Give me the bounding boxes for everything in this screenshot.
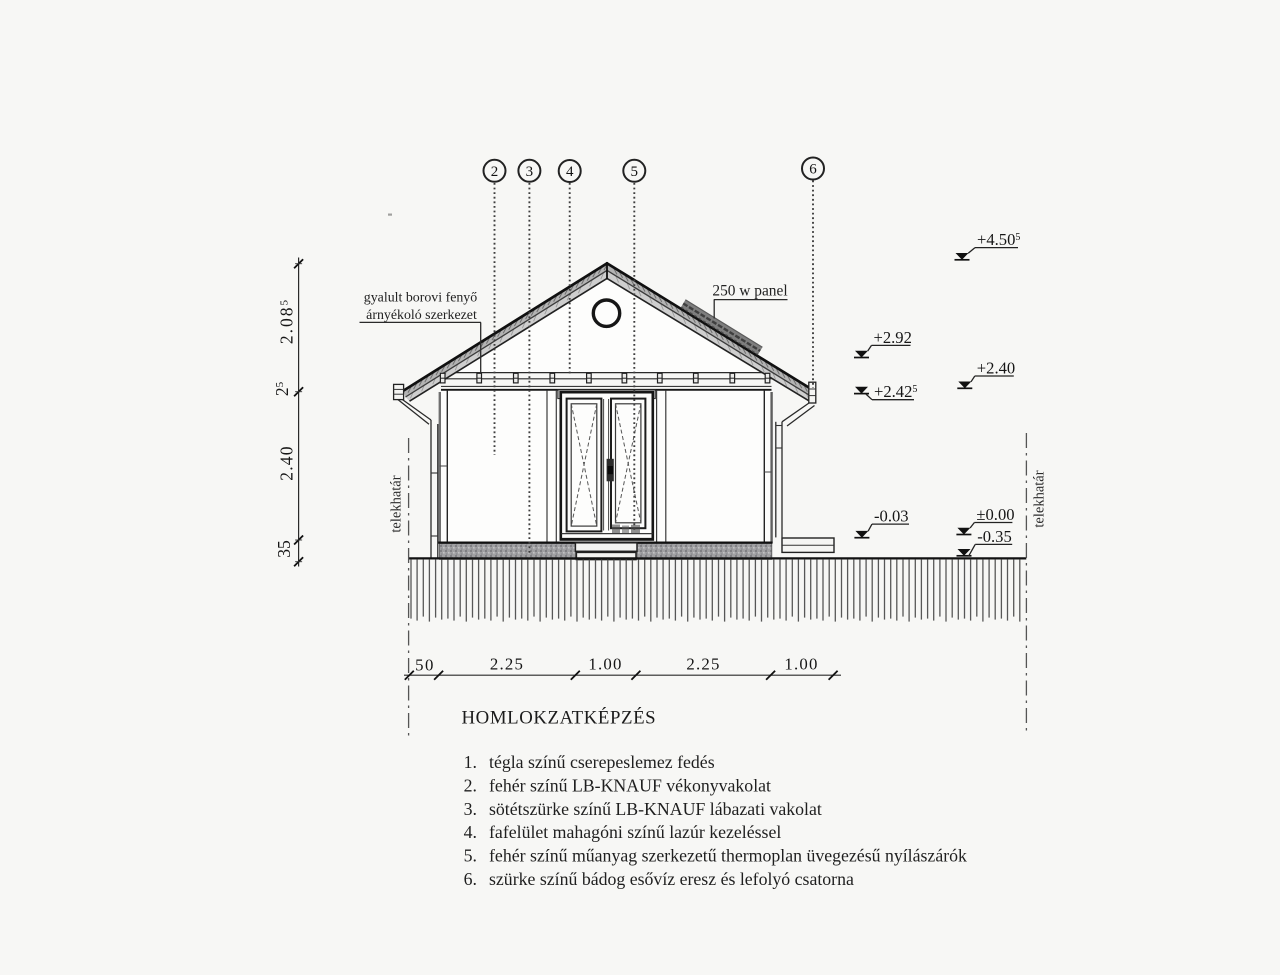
svg-text:1.: 1.	[464, 752, 477, 772]
svg-text:2.: 2.	[464, 775, 477, 795]
svg-text:2.25: 2.25	[490, 655, 524, 674]
svg-text:+4.505: +4.505	[977, 230, 1020, 249]
svg-text:gyalult borovi fenyő: gyalult borovi fenyő	[364, 291, 477, 306]
svg-text:telekhatár: telekhatár	[389, 475, 405, 532]
svg-text:2.25: 2.25	[686, 655, 720, 674]
svg-text:sötétszürke színű LB-KNAUF láb: sötétszürke színű LB-KNAUF lábazati vako…	[489, 799, 822, 819]
svg-text:250 w panel: 250 w panel	[712, 283, 787, 300]
svg-text:4: 4	[566, 164, 574, 180]
svg-text:5.: 5.	[464, 846, 477, 866]
svg-text:fehér színű műanyag szerkezetű: fehér színű műanyag szerkezetű thermopla…	[489, 846, 967, 866]
svg-text:telekhatár: telekhatár	[1032, 470, 1048, 527]
svg-text:2.40: 2.40	[277, 445, 297, 480]
svg-text:szürke színű bádog esővíz eres: szürke színű bádog esővíz eresz és lefol…	[489, 869, 854, 889]
svg-text:2: 2	[491, 164, 499, 180]
svg-text:6.: 6.	[464, 869, 477, 889]
svg-text:HOMLOKZATKÉPZÉS: HOMLOKZATKÉPZÉS	[462, 707, 657, 729]
svg-text:35: 35	[274, 540, 294, 558]
svg-text:-0.35: -0.35	[977, 527, 1012, 546]
svg-text:+2.425: +2.425	[874, 382, 917, 401]
svg-text:-0.03: -0.03	[874, 507, 909, 526]
svg-text:tégla színű cserepeslemez fedé: tégla színű cserepeslemez fedés	[489, 752, 715, 772]
svg-text:±0.00: ±0.00	[976, 505, 1014, 524]
svg-text:4.: 4.	[464, 822, 477, 842]
svg-text:fafelület mahagóni színű lazúr: fafelület mahagóni színű lazúr kezelésse…	[489, 822, 781, 842]
svg-text:6: 6	[809, 162, 817, 178]
svg-text:1.00: 1.00	[784, 655, 818, 674]
svg-text:3.: 3.	[464, 799, 477, 819]
svg-text:1.00: 1.00	[588, 655, 622, 674]
svg-text:árnyékoló szerkezet: árnyékoló szerkezet	[366, 308, 477, 323]
svg-text:fehér színű LB-KNAUF vékonyvak: fehér színű LB-KNAUF vékonyvakolat	[489, 775, 771, 795]
svg-text:3: 3	[526, 164, 534, 180]
svg-text:5: 5	[631, 164, 639, 180]
svg-text:+2.92: +2.92	[874, 328, 912, 347]
svg-text:50: 50	[415, 656, 435, 675]
svg-text:+2.40: +2.40	[977, 358, 1015, 377]
